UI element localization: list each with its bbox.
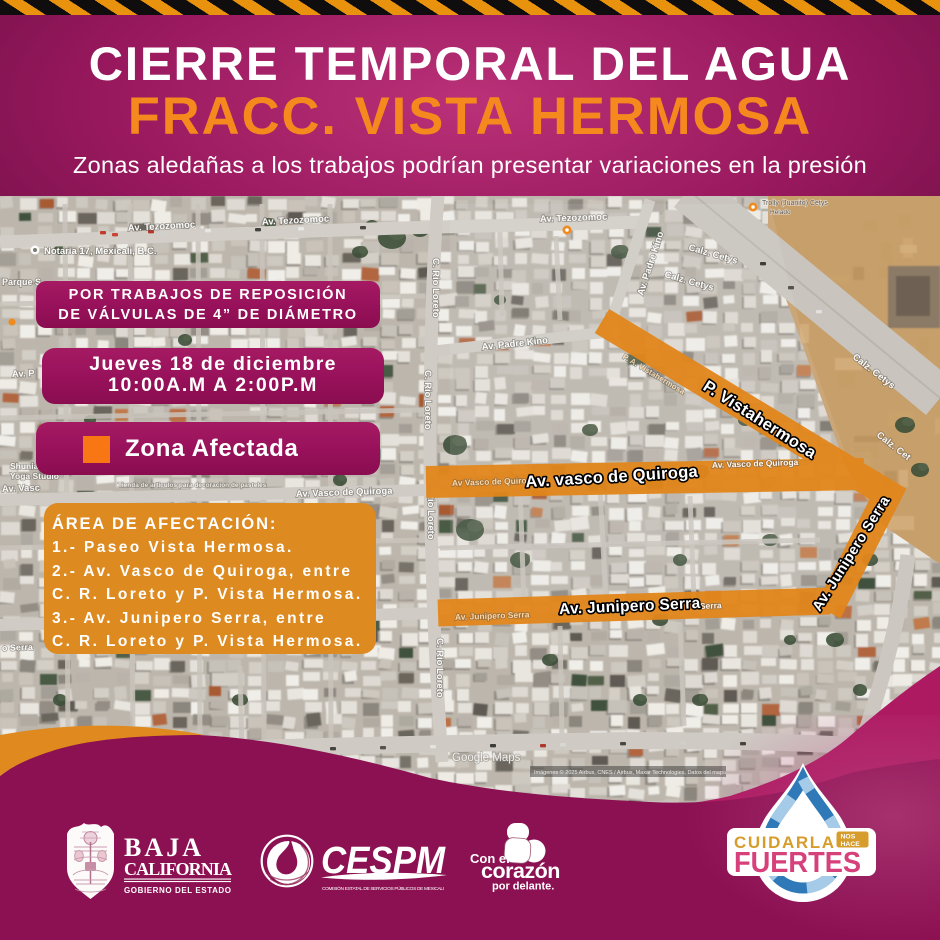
svg-text:Notaria 17, Mexicali, B.C.: Notaria 17, Mexicali, B.C. bbox=[44, 246, 156, 257]
svg-text:FUERTES: FUERTES bbox=[734, 847, 861, 879]
svg-text:corazón: corazón bbox=[481, 859, 560, 883]
svg-text:Parque S: Parque S bbox=[2, 277, 41, 287]
svg-text:COMISIÓN ESTATAL DE SERVICIOS: COMISIÓN ESTATAL DE SERVICIOS PÚBLICOS D… bbox=[322, 885, 444, 892]
svg-text:Av. P: Av. P bbox=[12, 368, 36, 380]
svg-text:C. Rio Loreto: C. Rio Loreto bbox=[422, 370, 433, 430]
svg-text:por delante.: por delante. bbox=[492, 881, 554, 893]
svg-text:Helado: Helado bbox=[770, 209, 791, 216]
svg-text:Shunia: Shunia bbox=[10, 461, 39, 471]
svg-text:Serra: Serra bbox=[700, 600, 722, 611]
svg-text:Av. Tezozomoc: Av. Tezozomoc bbox=[540, 212, 608, 225]
svg-text:o Serra: o Serra bbox=[2, 642, 34, 653]
svg-text:BAJA: BAJA bbox=[124, 833, 201, 862]
svg-text:NOS: NOS bbox=[841, 834, 856, 841]
svg-text:Av. Vasc: Av. Vasc bbox=[2, 483, 40, 495]
svg-text:Tienda de articulos para decor: Tienda de articulos para decoracion de p… bbox=[118, 482, 267, 489]
svg-text:Trolly (Juanito) Cetys: Trolly (Juanito) Cetys bbox=[762, 200, 828, 207]
svg-text:C. Rio Loreto: C. Rio Loreto bbox=[430, 258, 441, 318]
svg-text:CALIFORNIA: CALIFORNIA bbox=[124, 859, 232, 879]
svg-text:GOBIERNO DEL ESTADO: GOBIERNO DEL ESTADO bbox=[124, 886, 231, 895]
